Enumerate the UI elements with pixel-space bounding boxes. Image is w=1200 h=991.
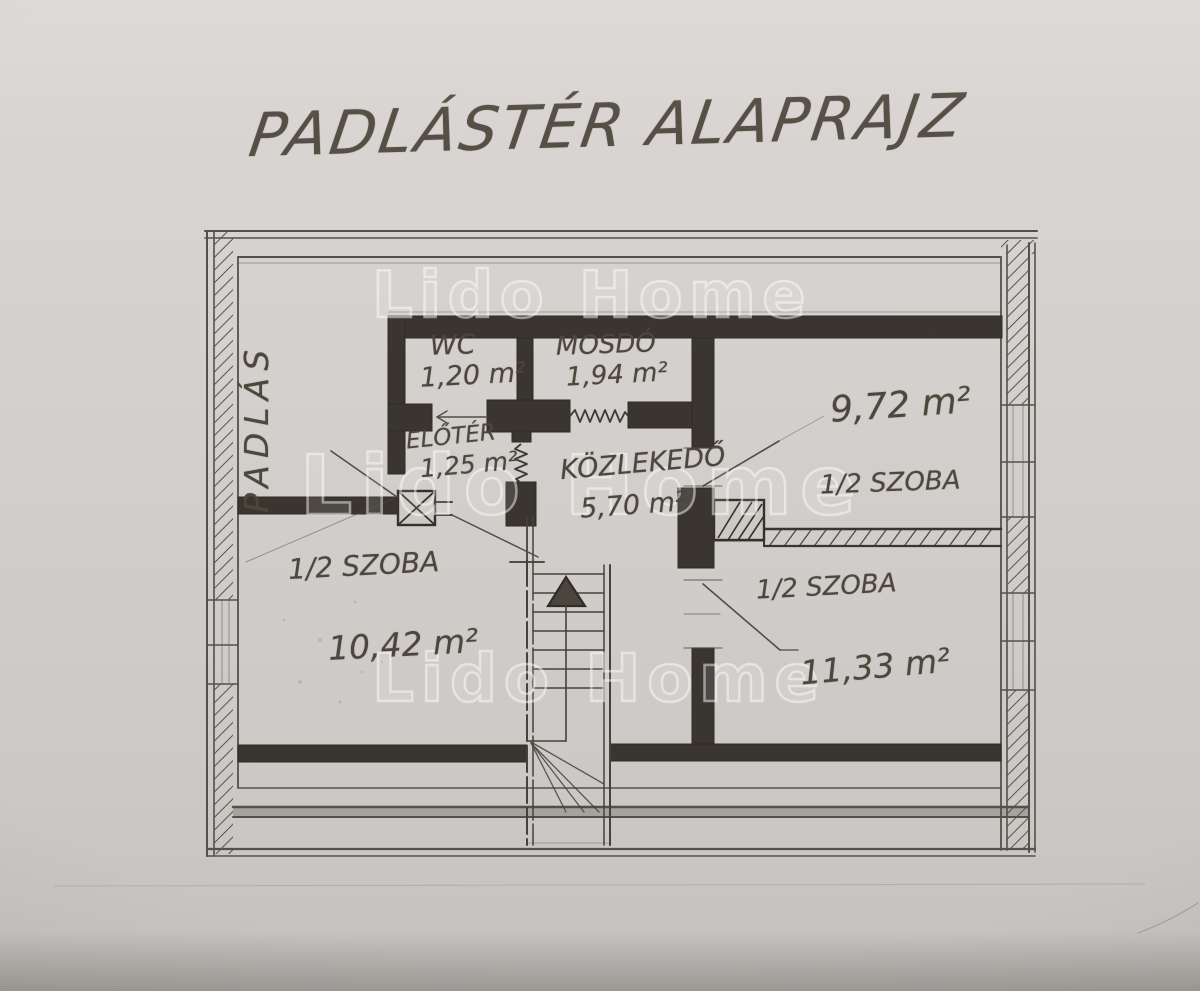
- room-name-mosdo: MOSDÓ: [556, 330, 657, 359]
- room-name-szoba-1042: 1/2 SZOBA: [287, 548, 440, 584]
- room-area-mosdo: 1,94 m²: [565, 359, 668, 390]
- chimney-x-block: [398, 491, 435, 525]
- scanned-floorplan-page: { "title": "PADLÁSTÉR ALAPRAJZ", "waterm…: [0, 0, 1200, 991]
- room-name-szoba-972: 1/2 SZOBA: [820, 468, 961, 499]
- room-area-wc: 1,20 m²: [419, 359, 526, 392]
- staircase: [527, 560, 610, 845]
- room-area-szoba-1042: 10,42 m²: [327, 624, 479, 665]
- winder-steps: [531, 742, 604, 812]
- chimney-hatched-block: [714, 500, 764, 540]
- drawing-stage: Lido Home Lido Home Lido Home PADLÁSTÉR …: [0, 0, 1200, 991]
- room-name-wc: WC: [430, 331, 476, 360]
- room-name-szoba-1133: 1/2 SZOBA: [755, 570, 897, 603]
- zigzag-mosdo-door: [570, 410, 628, 422]
- stair-direction-arrow: [548, 577, 585, 606]
- room-area-kozlekedo: 5,70 m²: [579, 488, 686, 522]
- room-area-szoba-972: 9,72 m²: [829, 383, 972, 429]
- attic-zone-label: PADLÁS: [240, 328, 273, 513]
